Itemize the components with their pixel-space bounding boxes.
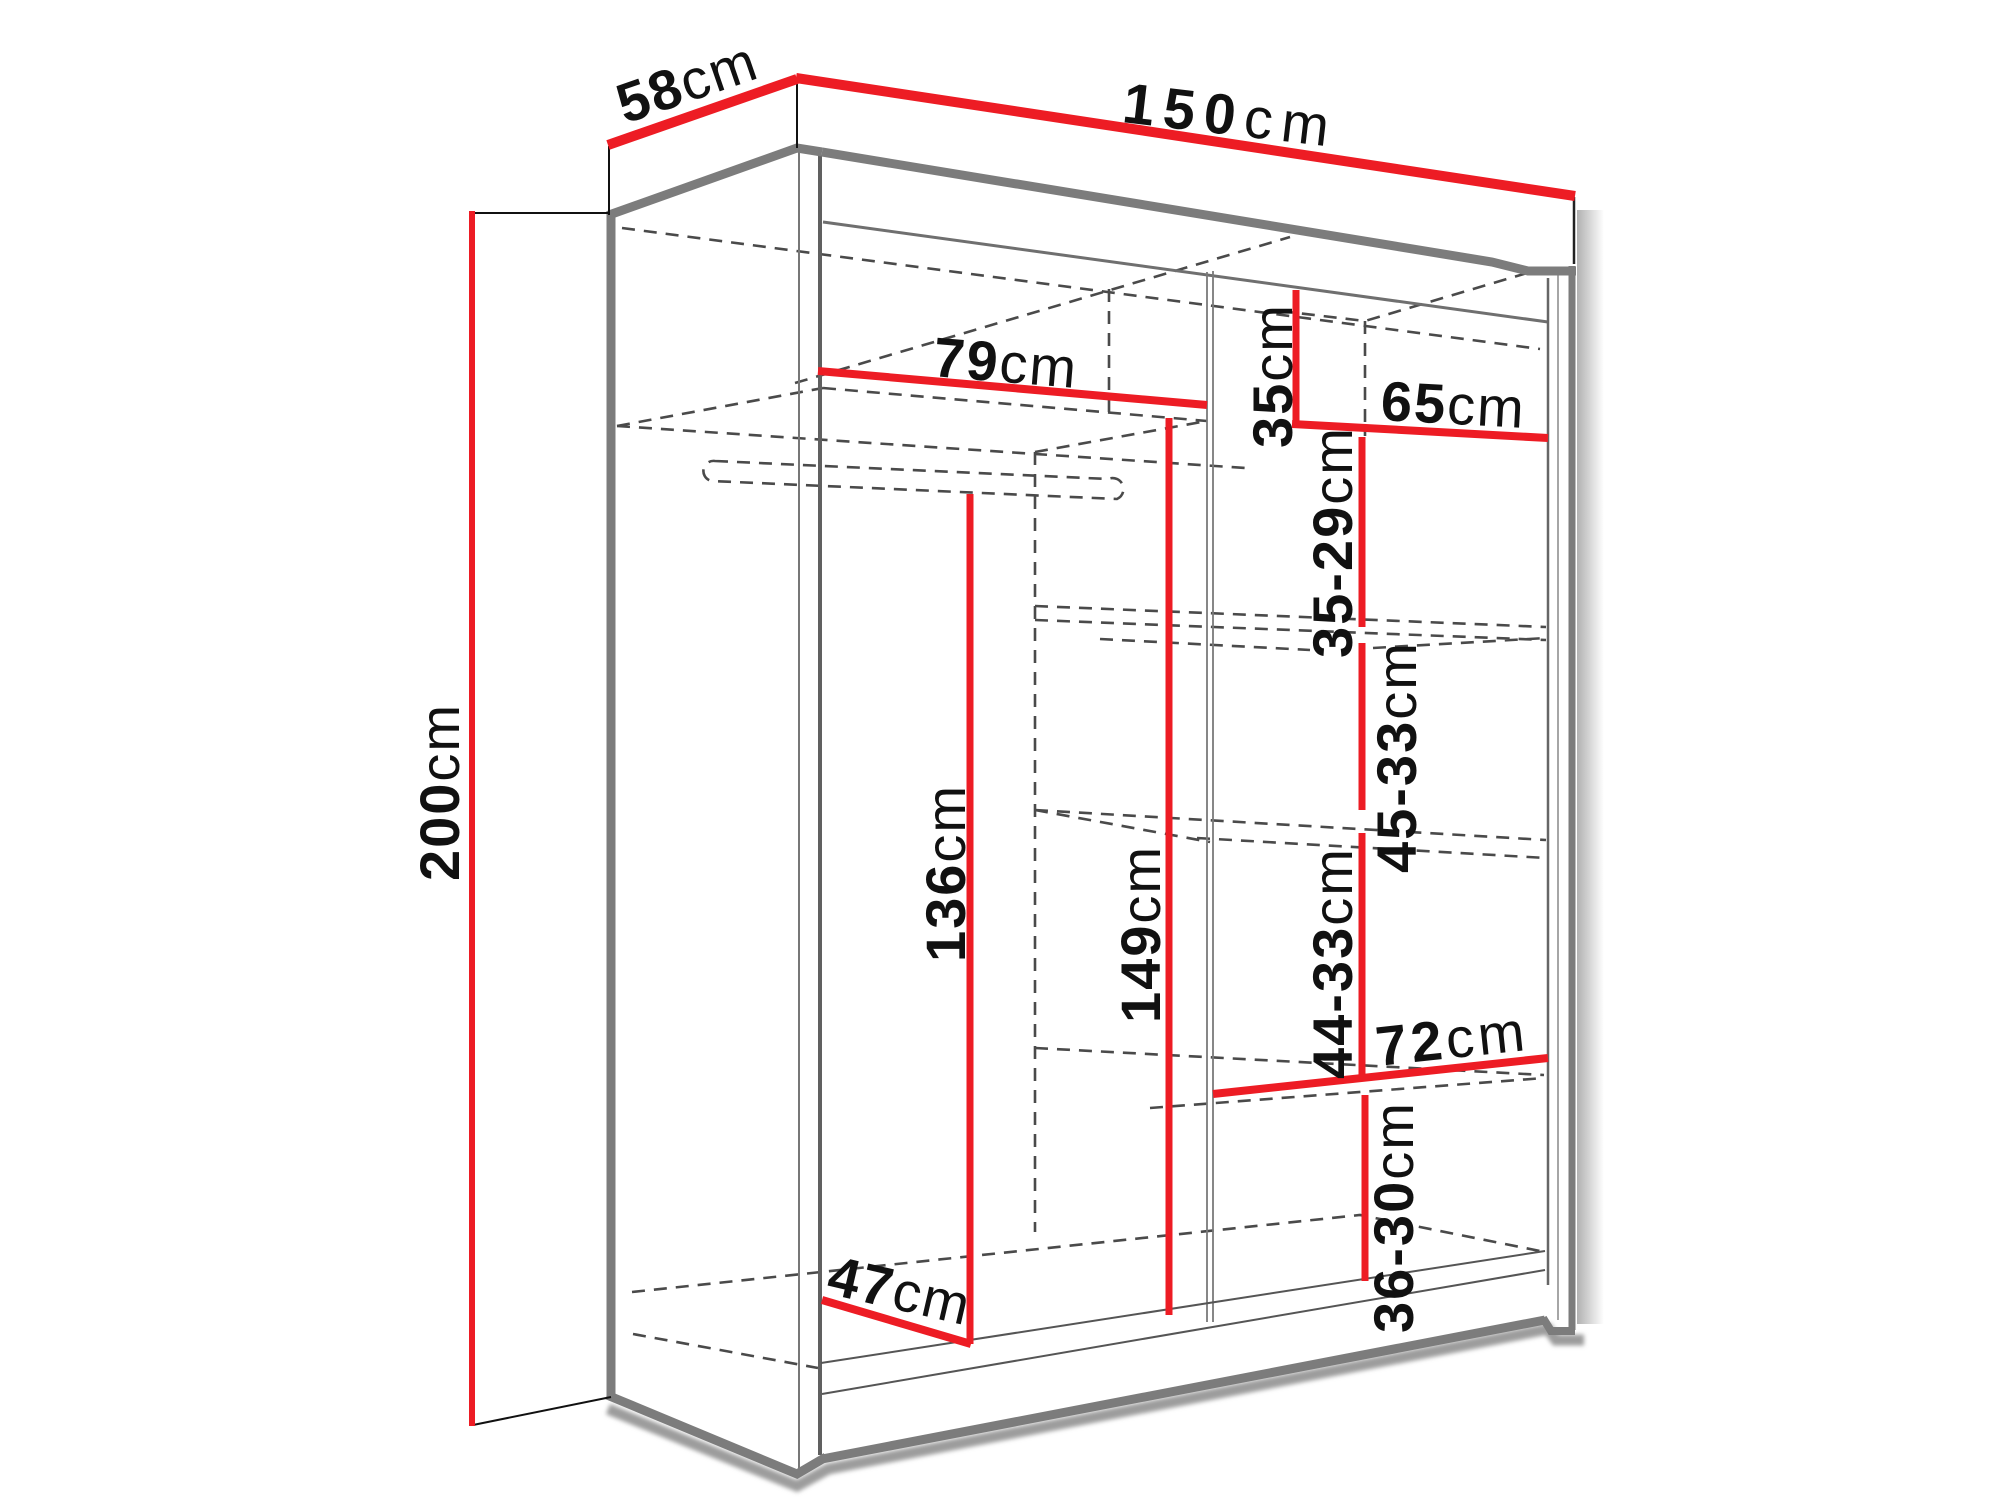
svg-text:136cm: 136cm bbox=[914, 784, 977, 962]
svg-text:35-29cm: 35-29cm bbox=[1301, 426, 1364, 658]
svg-text:79cm: 79cm bbox=[931, 325, 1081, 400]
svg-text:44-33cm: 44-33cm bbox=[1301, 847, 1364, 1079]
svg-text:45-33cm: 45-33cm bbox=[1365, 641, 1428, 873]
svg-text:36-30cm: 36-30cm bbox=[1362, 1101, 1425, 1333]
svg-text:200cm: 200cm bbox=[408, 703, 471, 881]
svg-text:149cm: 149cm bbox=[1109, 845, 1172, 1023]
svg-text:65cm: 65cm bbox=[1379, 369, 1527, 440]
svg-text:35cm: 35cm bbox=[1241, 303, 1304, 448]
